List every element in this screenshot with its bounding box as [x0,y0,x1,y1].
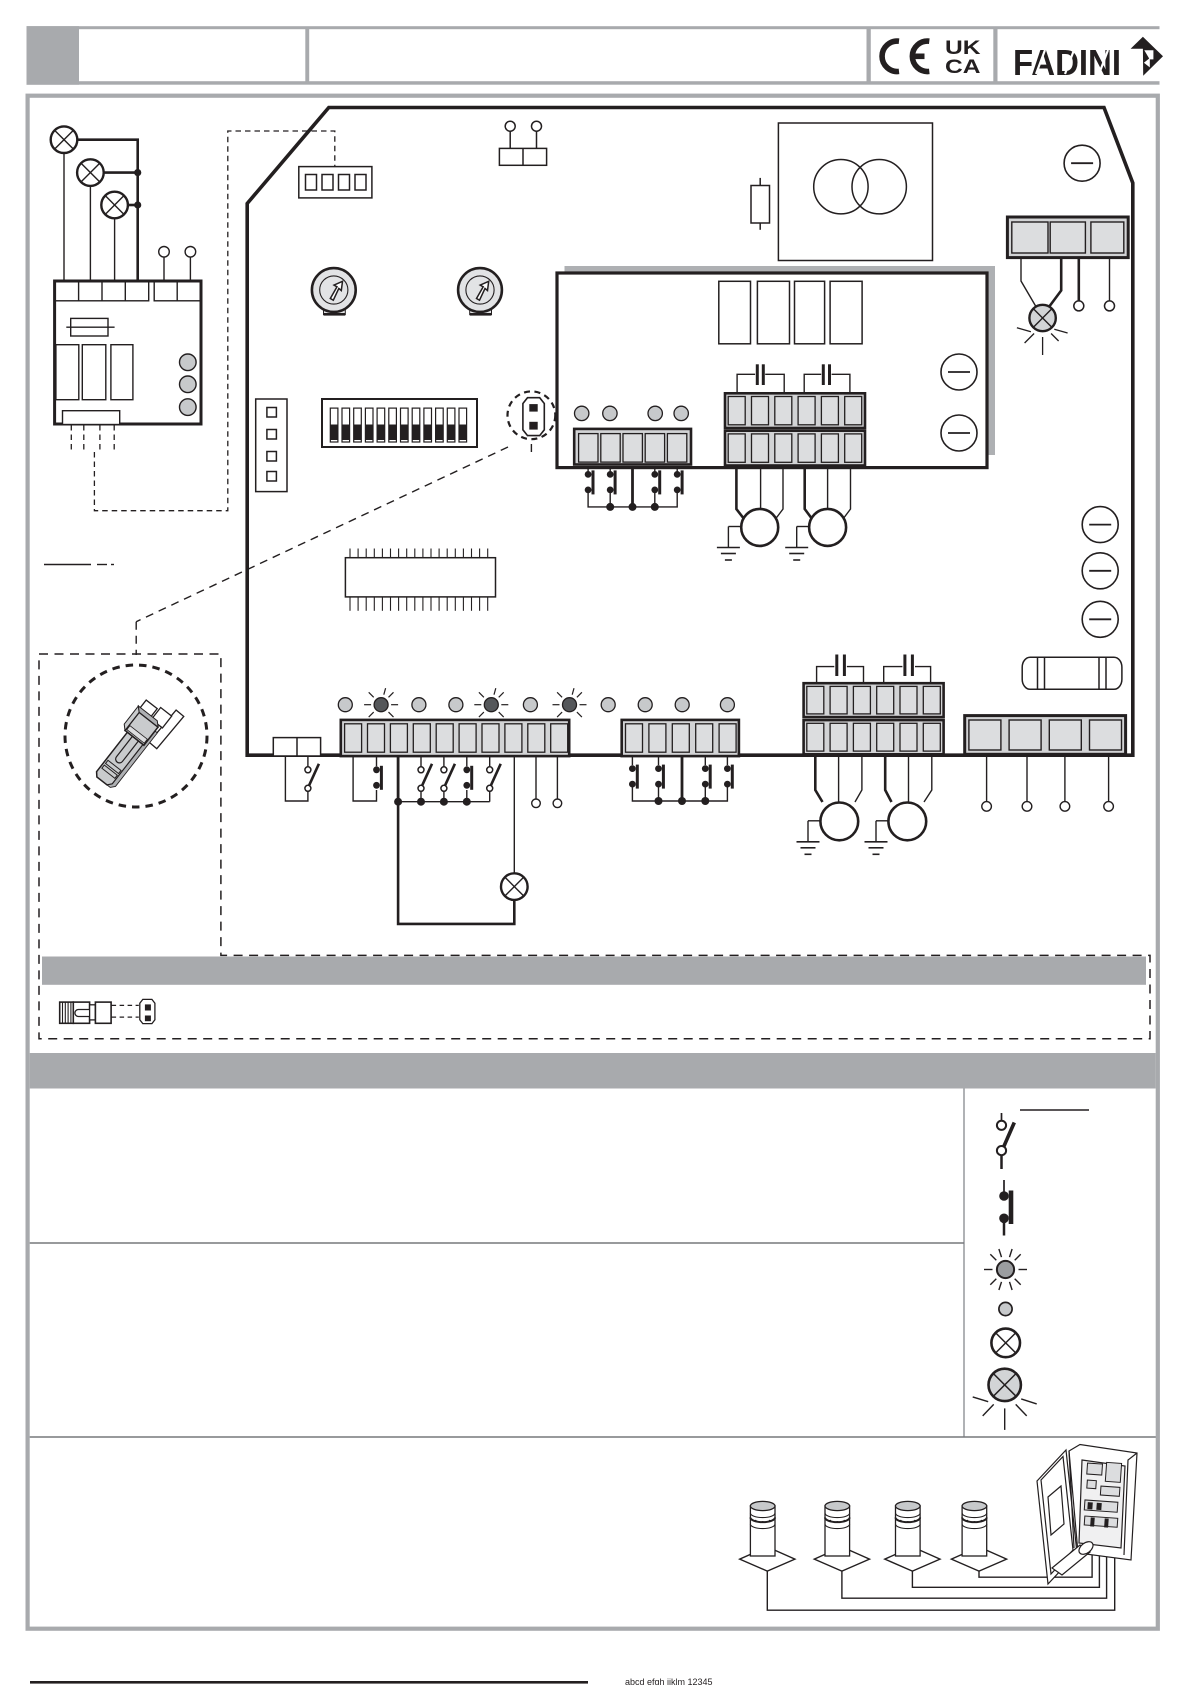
svg-text:abcd efgh ijklm 12345: abcd efgh ijklm 12345 [625,1677,713,1685]
svg-text:CA: CA [945,56,981,78]
svg-text:FADINI: FADINI [1013,43,1121,83]
